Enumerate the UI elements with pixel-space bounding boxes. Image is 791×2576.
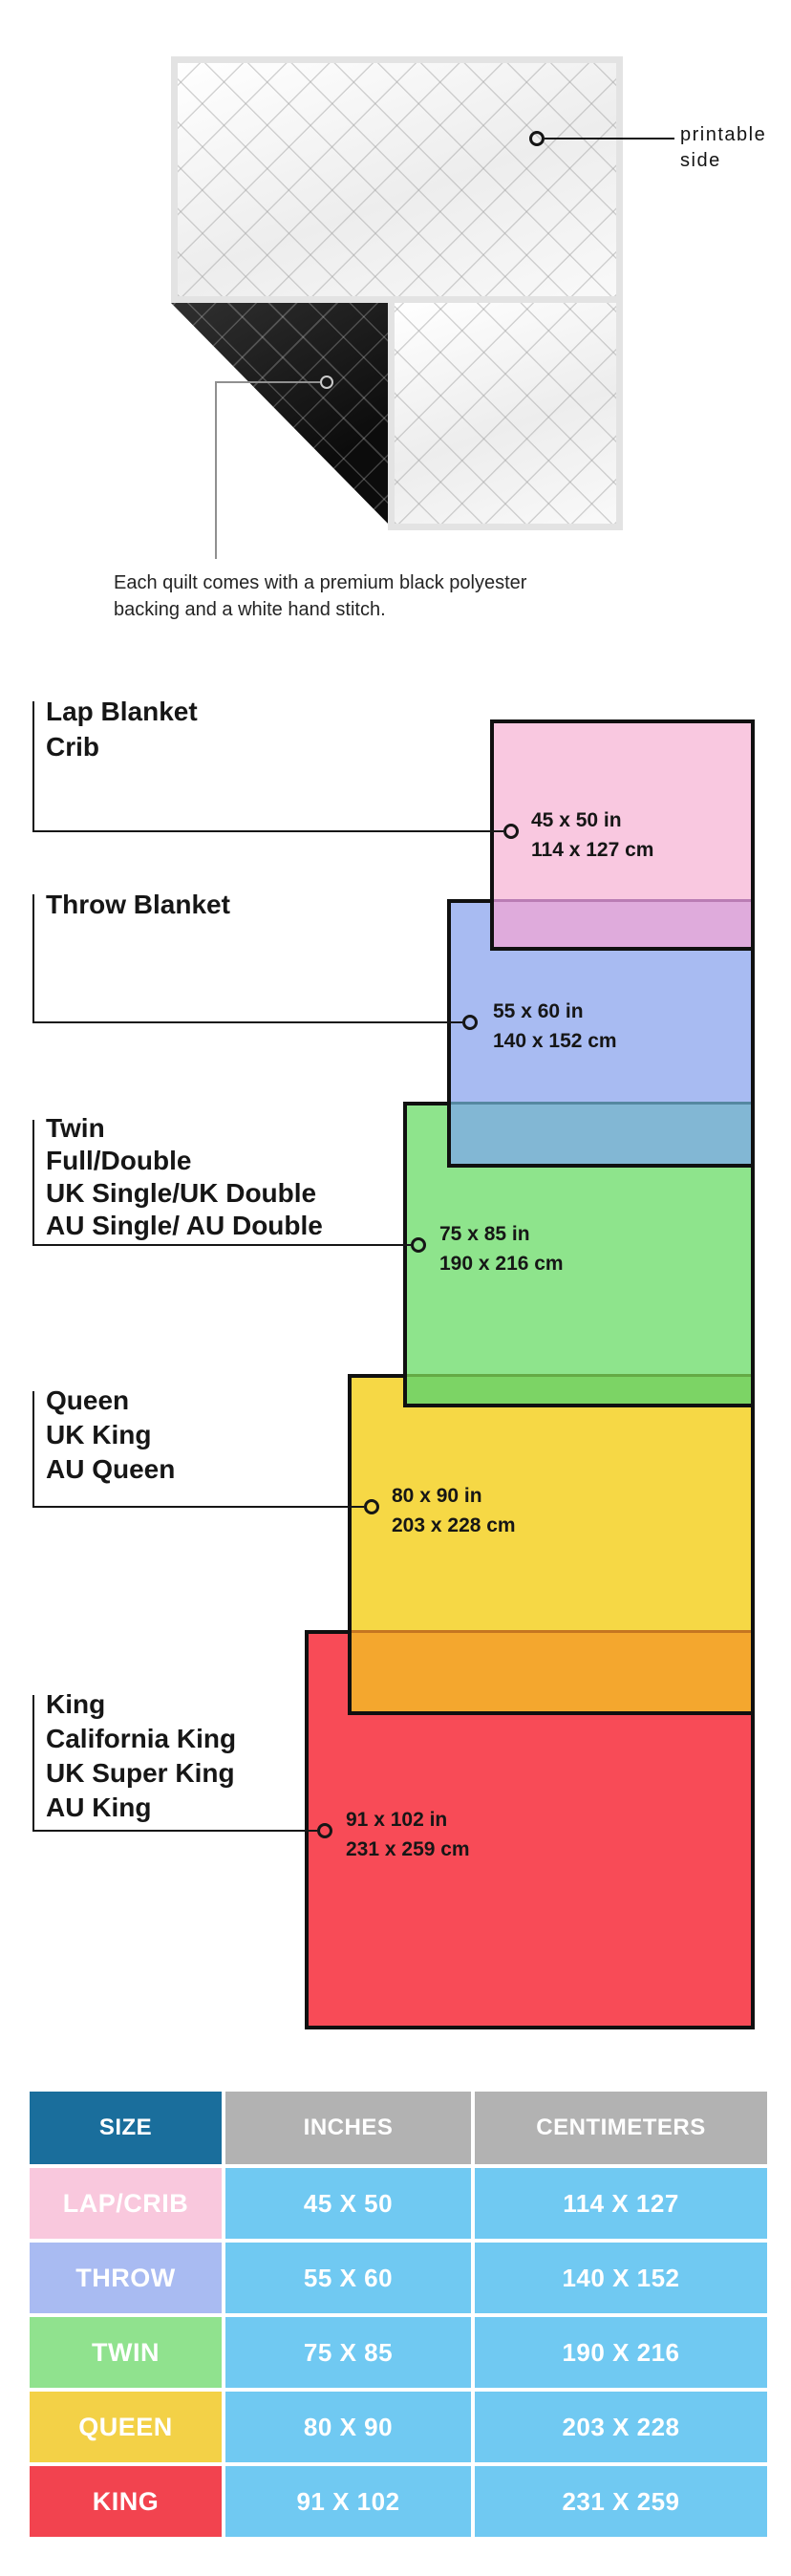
quilt-caption-line1: Each quilt comes with a premium black po… (114, 569, 630, 596)
queen-over-king-overlap (352, 1630, 751, 1711)
quilt-front-right (388, 296, 623, 530)
twin-dimensions: 75 x 85 in 190 x 216 cm (439, 1219, 564, 1278)
throw-over-twin-overlap (451, 1102, 751, 1164)
twin-labels: Twin Full/Double UK Single/UK Double AU … (46, 1112, 323, 1242)
throw-pointer-horizontal (32, 1021, 462, 1023)
king-pointer-vertical (32, 1695, 34, 1832)
printable-side-label-line1: printable (680, 122, 766, 148)
quilt-black-backing-fold (171, 303, 395, 530)
lap-crib-label-line2: Crib (46, 729, 198, 764)
king-label-line4: AU King (46, 1791, 236, 1825)
table-row-twin-size: TWIN (30, 2317, 222, 2388)
queen-pointer-marker (364, 1499, 379, 1514)
queen-labels: Queen UK King AU Queen (46, 1384, 175, 1487)
printable-side-label-line2: side (680, 148, 766, 174)
throw-pointer-marker (462, 1015, 478, 1030)
queen-pointer-vertical (32, 1391, 34, 1508)
table-header-centimeters: CENTIMETERS (475, 2092, 767, 2164)
lap-crib-dimensions: 45 x 50 in 114 x 127 cm (531, 805, 653, 865)
twin-label-line1: Twin (46, 1112, 323, 1145)
table-row-lap-crib-inches: 45 X 50 (225, 2168, 471, 2239)
twin-dimensions-inches: 75 x 85 in (439, 1219, 564, 1249)
king-dimensions-cm: 231 x 259 cm (346, 1835, 470, 1864)
throw-label-line1: Throw Blanket (46, 887, 230, 922)
table-row-lap-crib-size: LAP/CRIB (30, 2168, 222, 2239)
lap-over-throw-overlap (494, 899, 751, 947)
queen-pointer-horizontal (32, 1506, 364, 1508)
lap-crib-dimensions-cm: 114 x 127 cm (531, 835, 653, 865)
lap-crib-labels: Lap Blanket Crib (46, 694, 198, 764)
king-label-line2: California King (46, 1722, 236, 1756)
table-row-king-cm: 231 X 259 (475, 2466, 767, 2537)
quilt-front-top (171, 56, 623, 303)
backing-pointer-line-vertical (215, 381, 217, 559)
twin-label-line2: Full/Double (46, 1145, 323, 1177)
twin-pointer-horizontal (32, 1244, 411, 1246)
table-header-size: SIZE (30, 2092, 222, 2164)
table-row-throw-size: THROW (30, 2243, 222, 2313)
quilt-caption-line2: backing and a white hand stitch. (114, 596, 630, 623)
backing-pointer-line-horizontal (215, 381, 320, 383)
printable-side-label: printable side (680, 122, 766, 174)
throw-dimensions-inches: 55 x 60 in (493, 997, 617, 1026)
table-row-throw-inches: 55 X 60 (225, 2243, 471, 2313)
queen-label-line1: Queen (46, 1384, 175, 1418)
quilt-size-chart-infographic: printable side Each quilt comes with a p… (0, 0, 791, 2576)
table-row-twin-cm: 190 X 216 (475, 2317, 767, 2388)
twin-label-line4: AU Single/ AU Double (46, 1210, 323, 1242)
throw-dimensions-cm: 140 x 152 cm (493, 1026, 617, 1056)
backing-marker (320, 376, 333, 389)
table-row-queen-cm: 203 X 228 (475, 2392, 767, 2462)
throw-dimensions: 55 x 60 in 140 x 152 cm (493, 997, 617, 1056)
queen-dimensions-inches: 80 x 90 in (392, 1481, 516, 1511)
king-label-line3: UK Super King (46, 1756, 236, 1791)
lap-crib-label-line1: Lap Blanket (46, 694, 198, 729)
queen-dimensions-cm: 203 x 228 cm (392, 1511, 516, 1540)
twin-pointer-vertical (32, 1120, 34, 1246)
queen-dimensions: 80 x 90 in 203 x 228 cm (392, 1481, 516, 1540)
king-labels: King California King UK Super King AU Ki… (46, 1687, 236, 1825)
table-row-twin-inches: 75 X 85 (225, 2317, 471, 2388)
lap-crib-pointer-horizontal (32, 830, 503, 832)
lap-crib-pointer-vertical (32, 701, 34, 832)
table-row-king-size: KING (30, 2466, 222, 2537)
queen-rectangle (348, 1374, 755, 1715)
twin-pointer-marker (411, 1237, 426, 1253)
king-dimensions-inches: 91 x 102 in (346, 1805, 470, 1835)
table-row-throw-cm: 140 X 152 (475, 2243, 767, 2313)
throw-labels: Throw Blanket (46, 887, 230, 922)
king-pointer-marker (317, 1823, 332, 1838)
queen-label-line2: UK King (46, 1418, 175, 1452)
twin-label-line3: UK Single/UK Double (46, 1177, 323, 1210)
lap-crib-pointer-marker (503, 824, 519, 839)
king-pointer-horizontal (32, 1830, 317, 1832)
king-label-line1: King (46, 1687, 236, 1722)
king-dimensions: 91 x 102 in 231 x 259 cm (346, 1805, 470, 1864)
printable-side-pointer-line (545, 138, 674, 140)
printable-side-marker (529, 131, 545, 146)
twin-over-queen-overlap (407, 1374, 751, 1404)
lap-crib-dimensions-inches: 45 x 50 in (531, 805, 653, 835)
quilt-caption: Each quilt comes with a premium black po… (114, 569, 630, 623)
table-row-king-inches: 91 X 102 (225, 2466, 471, 2537)
table-row-queen-size: QUEEN (30, 2392, 222, 2462)
table-header-inches: INCHES (225, 2092, 471, 2164)
throw-pointer-vertical (32, 894, 34, 1023)
size-table: SIZE INCHES CENTIMETERS LAP/CRIB 45 X 50… (30, 2092, 767, 2537)
table-row-queen-inches: 80 X 90 (225, 2392, 471, 2462)
twin-dimensions-cm: 190 x 216 cm (439, 1249, 564, 1278)
queen-label-line3: AU Queen (46, 1452, 175, 1487)
table-row-lap-crib-cm: 114 X 127 (475, 2168, 767, 2239)
